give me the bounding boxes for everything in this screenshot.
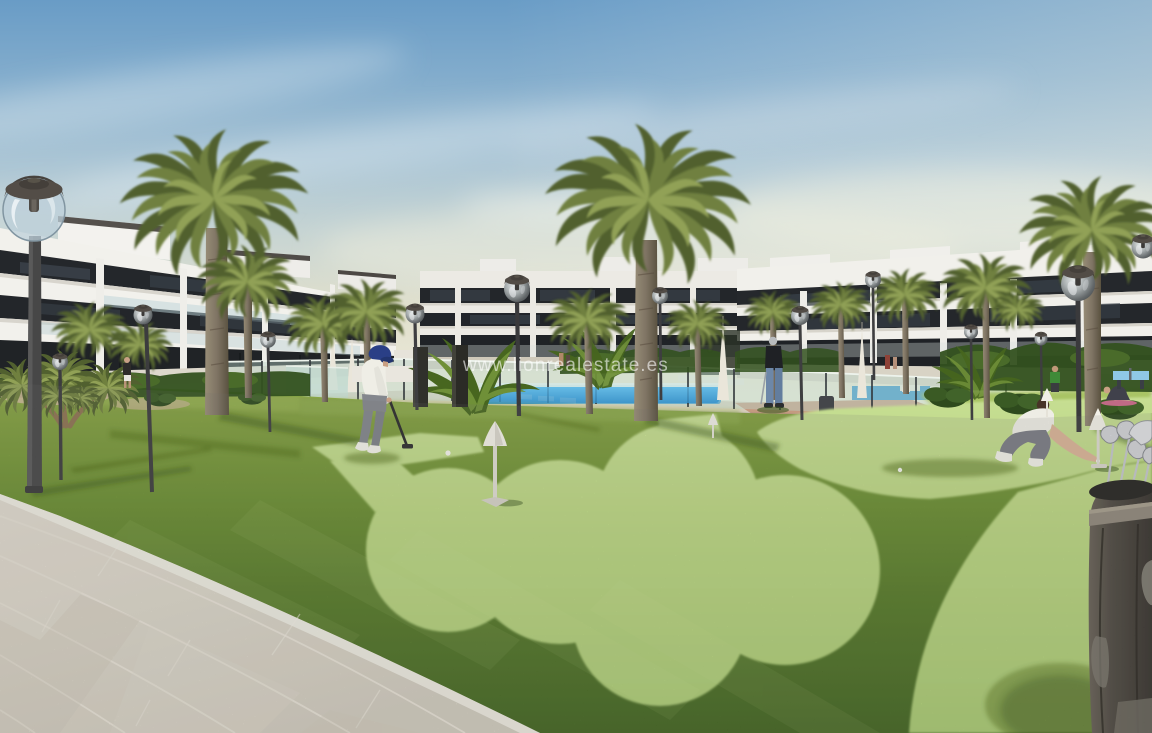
svg-text:www.lionrealestate.es: www.lionrealestate.es	[462, 355, 669, 376]
